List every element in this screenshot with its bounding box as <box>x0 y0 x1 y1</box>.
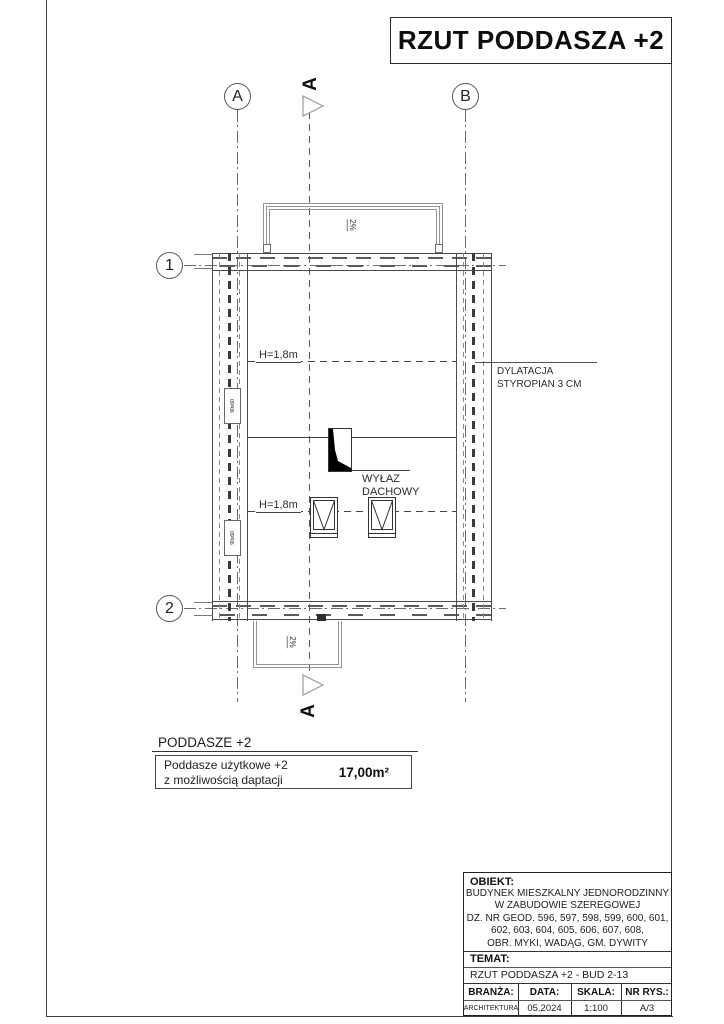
tick <box>194 615 212 616</box>
roof-hatch-icon <box>328 428 352 472</box>
data-label: DATA: <box>518 985 571 1000</box>
section-arrow-top-icon <box>302 94 324 118</box>
axis-marker-a-label: A <box>232 88 243 106</box>
branza-value: ARCHITEKTURA <box>464 1001 518 1016</box>
section-line <box>309 112 310 672</box>
temat-label: TEMAT: <box>470 953 510 965</box>
obiekt-lines: BUDYNEK MIESZKALNY JEDNORODZINNY W ZABUD… <box>464 888 671 950</box>
title-block-divider <box>464 951 671 952</box>
terrace-post-right <box>435 244 443 253</box>
legend-area-value: 17,00m² <box>339 756 389 788</box>
title-block-divider <box>464 983 671 984</box>
skala-value: 1:100 <box>571 1001 621 1016</box>
page-title: RZUT PODDASZA +2 <box>398 25 664 56</box>
roof-hatch-label: WYŁAZ DACHOWY <box>362 473 419 499</box>
legend-underline <box>152 751 418 752</box>
frame-left <box>46 0 47 1017</box>
wall-bottom <box>212 601 492 620</box>
title-box: RZUT PODDASZA +2 <box>390 17 672 64</box>
obiekt-label: OBIEKT: <box>470 876 514 888</box>
legend-box: Poddasze użytkowe +2 z możliwością dapta… <box>155 755 412 789</box>
nr-rys-value: A/3 <box>621 1001 673 1016</box>
height-label-upper: H=1,8m <box>256 349 301 363</box>
roof-window-icon <box>310 497 338 538</box>
section-arrow-bottom-icon <box>302 673 324 697</box>
drawing-sheet: RZUT PODDASZA +2 A B 1 2 A A 2% <box>0 0 724 1024</box>
axis-marker-2: 2 <box>156 595 183 622</box>
legend-item-label: Poddasze użytkowe +2 z możliwością dapta… <box>164 758 288 787</box>
temat-value: RZUT PODDASZA +2 - BUD 2-13 <box>470 969 628 981</box>
ridge-line <box>248 437 456 438</box>
window-tag-lower: 90x60 <box>224 520 241 556</box>
nr-rys-label: NR RYS.: <box>621 985 673 1000</box>
roof-hatch-leader <box>352 470 410 471</box>
axis-marker-2-label: 2 <box>165 600 174 618</box>
tick <box>194 268 212 269</box>
terrace-step-block <box>317 614 326 621</box>
frame-bottom <box>46 1016 673 1017</box>
wall-left <box>212 253 248 621</box>
terrace-post-left <box>263 244 271 253</box>
title-block-divider <box>464 967 671 968</box>
axis-marker-1-label: 1 <box>165 257 174 275</box>
axis-marker-b: B <box>452 83 479 110</box>
wall-right <box>456 253 492 621</box>
axis-marker-b-label: B <box>460 88 471 106</box>
bottom-slope-label: 2% <box>284 628 300 656</box>
title-block: OBIEKT: BUDYNEK MIESZKALNY JEDNORODZINNY… <box>463 872 672 1016</box>
dilatation-label: DYLATACJA STYROPIAN 3 CM <box>497 365 581 391</box>
wall-top <box>212 253 492 271</box>
section-letter-bottom: A <box>298 700 320 722</box>
tick <box>194 254 212 255</box>
skala-label: SKALA: <box>571 985 621 1000</box>
legend-header: PODDASZE +2 <box>158 735 251 750</box>
section-letter-top: A <box>300 73 322 95</box>
data-value: 05.2024 <box>518 1001 571 1016</box>
frame-right <box>671 17 672 1017</box>
height-label-lower: H=1,8m <box>256 499 301 513</box>
dilatation-leader <box>475 362 597 363</box>
top-slope-label: 2% <box>344 210 360 240</box>
window-tag-upper: 90x60 <box>224 388 241 424</box>
roof-window-icon <box>368 497 396 538</box>
tick <box>194 602 212 603</box>
axis-marker-1: 1 <box>156 252 183 279</box>
branza-label: BRANŻA: <box>464 985 518 1000</box>
axis-marker-a: A <box>224 83 251 110</box>
